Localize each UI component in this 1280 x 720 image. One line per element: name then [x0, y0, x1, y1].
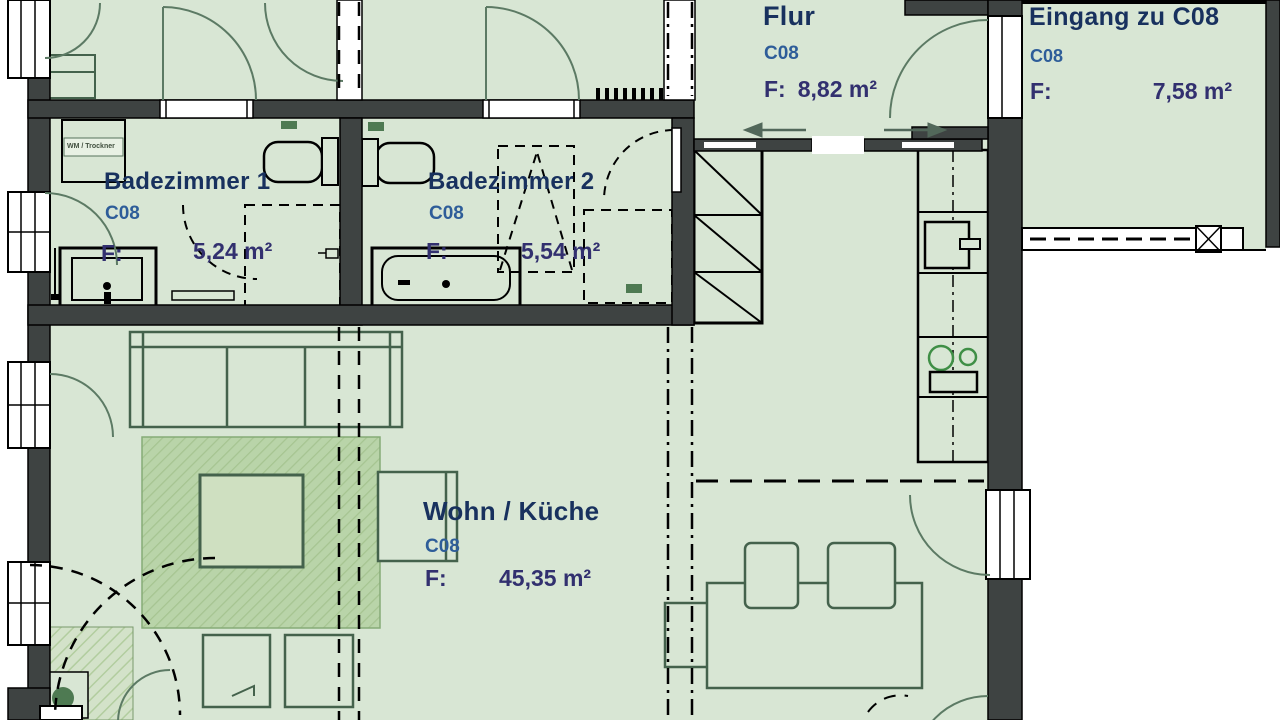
room-area-wohn-kueche: 45,35 m² — [499, 567, 591, 590]
sliding-panel-glass — [902, 142, 954, 148]
room-area-badezimmer2: 5,54 m² — [521, 240, 600, 263]
sliding-door-gap — [812, 136, 864, 154]
entry-railing — [1022, 226, 1266, 252]
oven-handle — [960, 239, 980, 249]
chair-1 — [203, 635, 270, 707]
entry-area-floor — [1022, 0, 1266, 250]
flur-entry-door — [988, 16, 1022, 118]
dining-chair-2 — [828, 543, 895, 608]
toilet-2-cistern — [362, 139, 378, 186]
toilet-1-flush-icon — [281, 121, 297, 129]
room-area-flur: 8,82 m² — [798, 78, 877, 101]
room-area-badezimmer1: 5,24 m² — [193, 240, 272, 263]
room-unit-eingang: C08 — [1030, 47, 1063, 65]
room-area-eingang: 7,58 m² — [1153, 80, 1232, 103]
room-area-label-eingang: F: — [1030, 80, 1052, 103]
balcony-door — [986, 490, 1030, 579]
wall-top-horizontal — [28, 100, 694, 118]
room-name-badezimmer1: Badezimmer 1 — [104, 170, 270, 194]
toilet-1-bowl — [264, 142, 322, 182]
room-area-label-badezimmer2: F: — [426, 240, 448, 263]
dining-chair-1 — [745, 543, 798, 608]
coffee-table — [200, 475, 303, 567]
room-unit-badezimmer2: C08 — [429, 204, 464, 223]
room-name-wohn-kueche: Wohn / Küche — [423, 498, 599, 524]
wall-below-baths — [28, 305, 694, 325]
top-room-furniture — [49, 55, 95, 98]
toilet-2-flush-icon — [368, 122, 384, 131]
door-handle-icon — [626, 284, 642, 293]
room-unit-badezimmer1: C08 — [105, 204, 140, 223]
toilet-2-bowl — [376, 143, 434, 183]
window-1 — [8, 0, 50, 78]
room-area-label-badezimmer1: F: — [101, 242, 123, 265]
bath2-door-leaf — [672, 128, 681, 192]
wall-flur-top — [905, 0, 988, 15]
washer-dryer-label: WM / Trockner — [67, 143, 115, 150]
floor-plan: WM / Trockner Badezimmer 1 C08 F: 5,24 m… — [0, 0, 1280, 720]
room-name-eingang: Eingang zu C08 — [1029, 5, 1219, 30]
chair-2 — [285, 635, 353, 707]
room-name-badezimmer2: Badezimmer 2 — [428, 170, 594, 194]
room-area-label-wohn-kueche: F: — [425, 567, 447, 590]
kitchen-counter — [918, 150, 988, 462]
room-unit-wohn-kueche: C08 — [425, 537, 460, 556]
door-bottom — [40, 706, 82, 720]
wall-entry-right — [1266, 0, 1280, 247]
wall-between-baths — [340, 118, 362, 325]
room-area-row-flur: F: 8,82 m² — [764, 78, 877, 101]
closet — [694, 150, 762, 323]
cabinet — [49, 55, 95, 98]
room-area-row-eingang: F: 7,58 m² — [1030, 80, 1232, 103]
room-unit-flur: C08 — [764, 44, 799, 63]
sliding-panel-glass — [704, 142, 756, 148]
room-area-label-flur: F: — [764, 78, 786, 101]
floor-plan-drawing — [0, 0, 1280, 720]
sink-basin — [930, 372, 977, 392]
toilet-1-cistern — [322, 138, 338, 185]
wall-right — [988, 118, 1022, 720]
wall-right-top — [988, 0, 1022, 16]
room-name-flur: Flur — [763, 3, 815, 30]
